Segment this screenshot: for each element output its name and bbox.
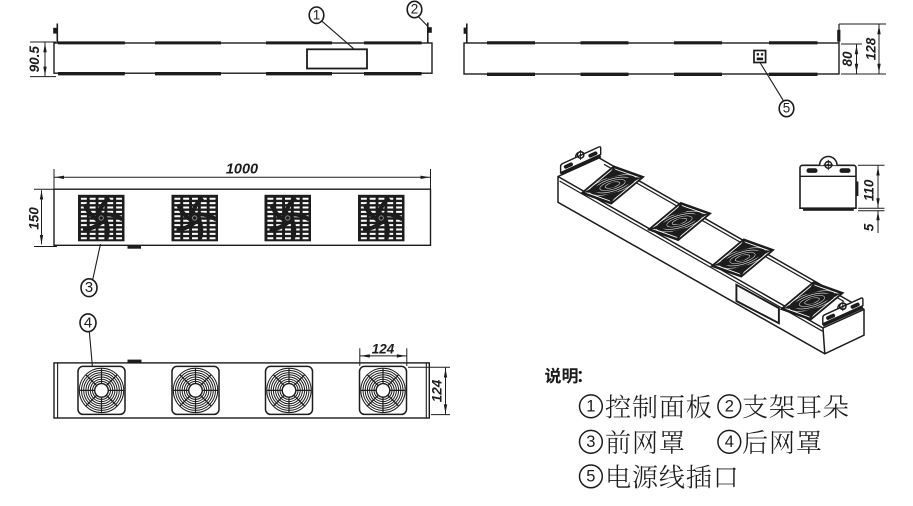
svg-text:110: 110 <box>861 179 876 201</box>
svg-text:4: 4 <box>84 315 92 331</box>
svg-text:5: 5 <box>861 223 876 231</box>
svg-text:1: 1 <box>313 7 321 22</box>
svg-text:2: 2 <box>411 2 419 17</box>
svg-text:1: 1 <box>586 397 595 415</box>
svg-text:4: 4 <box>725 433 734 451</box>
svg-text:3: 3 <box>586 433 595 451</box>
svg-text:90.5: 90.5 <box>27 46 42 73</box>
svg-text:3: 3 <box>85 280 93 296</box>
svg-text:124: 124 <box>372 341 395 356</box>
svg-text:124: 124 <box>429 379 444 402</box>
svg-text:128: 128 <box>864 37 879 60</box>
svg-text:150: 150 <box>27 207 42 230</box>
svg-text:80: 80 <box>840 51 855 67</box>
svg-text:5: 5 <box>586 468 595 486</box>
svg-text:1000: 1000 <box>226 162 258 178</box>
svg-text:5: 5 <box>783 101 791 116</box>
svg-text:2: 2 <box>725 397 734 415</box>
